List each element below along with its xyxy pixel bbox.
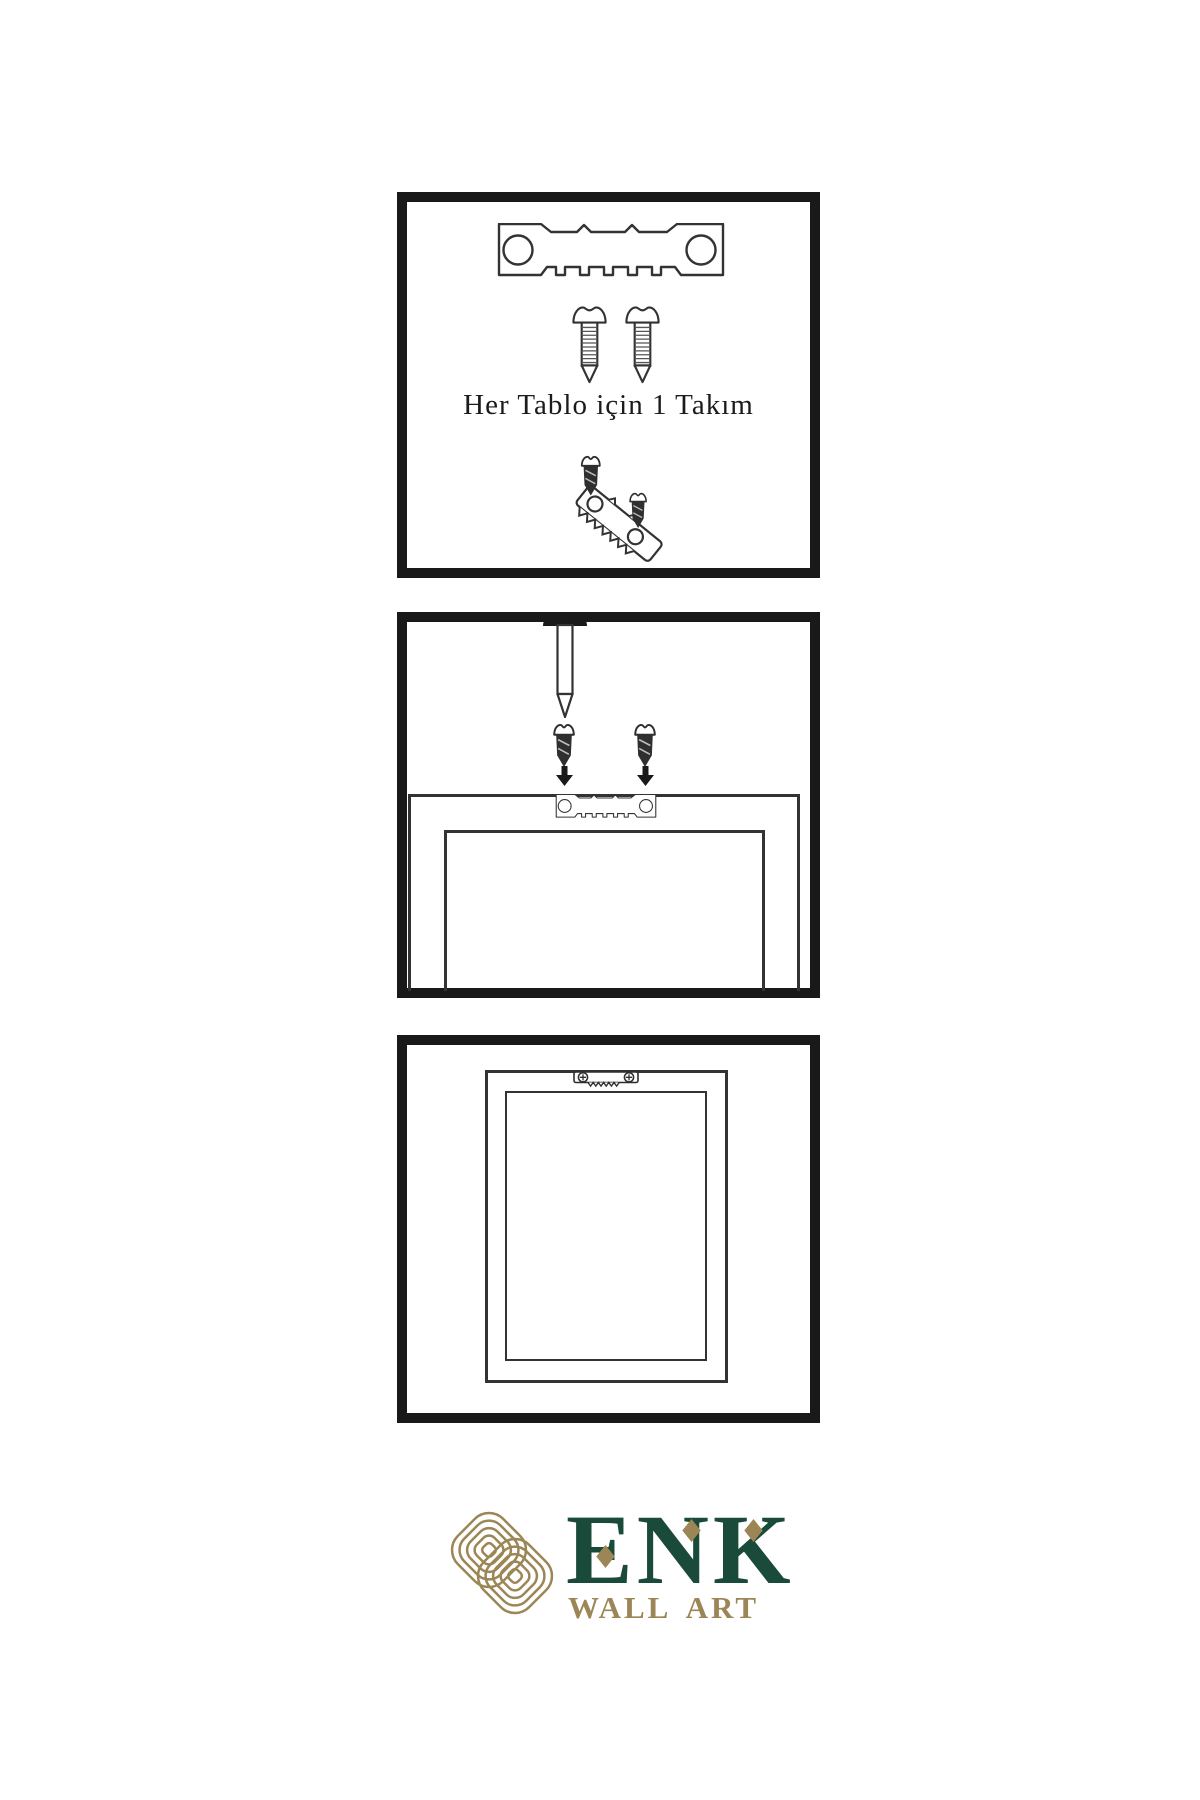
sawtooth-hanger-icon [495,223,727,277]
screw-icon [633,723,657,768]
arrow-down-icon [556,766,573,786]
wall-mount-panel [397,612,820,998]
screw-icon [571,305,608,385]
picture-frame-inner-outline [505,1091,707,1361]
screw-icon [552,723,576,768]
sawtooth-hanger-icon [554,794,658,818]
screw-into-hanger-icon [572,447,677,562]
nail-icon [542,613,588,719]
frame-inner-outline [444,830,765,991]
screw-icon [624,305,661,385]
brand-subtitle: WALL ART [568,1592,759,1623]
knot-logo-icon [440,1497,564,1629]
mounted-hanger-icon [573,1071,639,1088]
kit-caption: Her Tablo için 1 Takım [407,389,810,422]
hung-frame-panel [397,1035,820,1423]
kit-panel: Her Tablo için 1 Takım [397,192,820,578]
product-instruction-image: Her Tablo için 1 Takım [0,0,1200,1800]
arrow-down-icon [637,766,654,786]
